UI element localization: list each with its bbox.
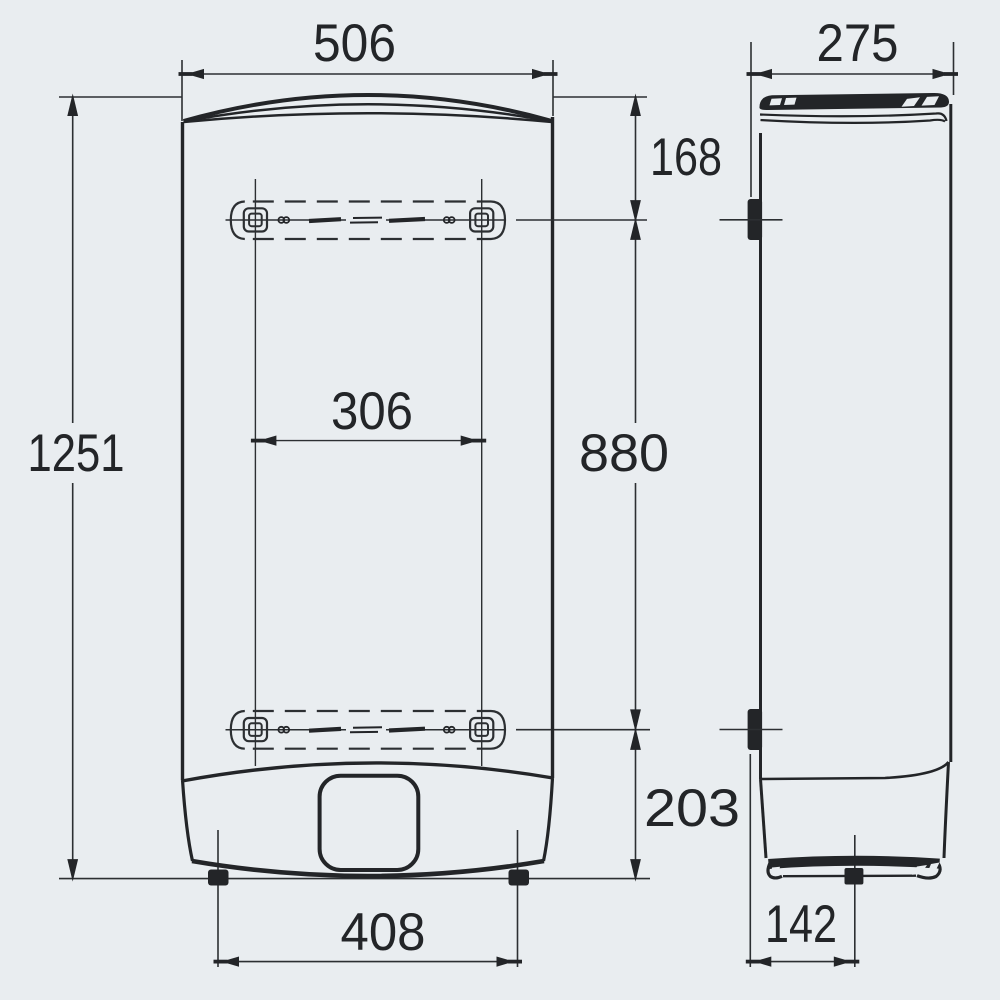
svg-text:880: 880 bbox=[579, 424, 669, 483]
svg-text:203: 203 bbox=[644, 779, 740, 838]
svg-text:168: 168 bbox=[650, 128, 722, 187]
svg-text:506: 506 bbox=[313, 14, 396, 73]
svg-text:306: 306 bbox=[331, 382, 413, 441]
svg-text:275: 275 bbox=[817, 14, 899, 73]
svg-text:142: 142 bbox=[765, 895, 837, 954]
svg-text:1251: 1251 bbox=[28, 424, 125, 483]
svg-text:408: 408 bbox=[341, 903, 426, 962]
